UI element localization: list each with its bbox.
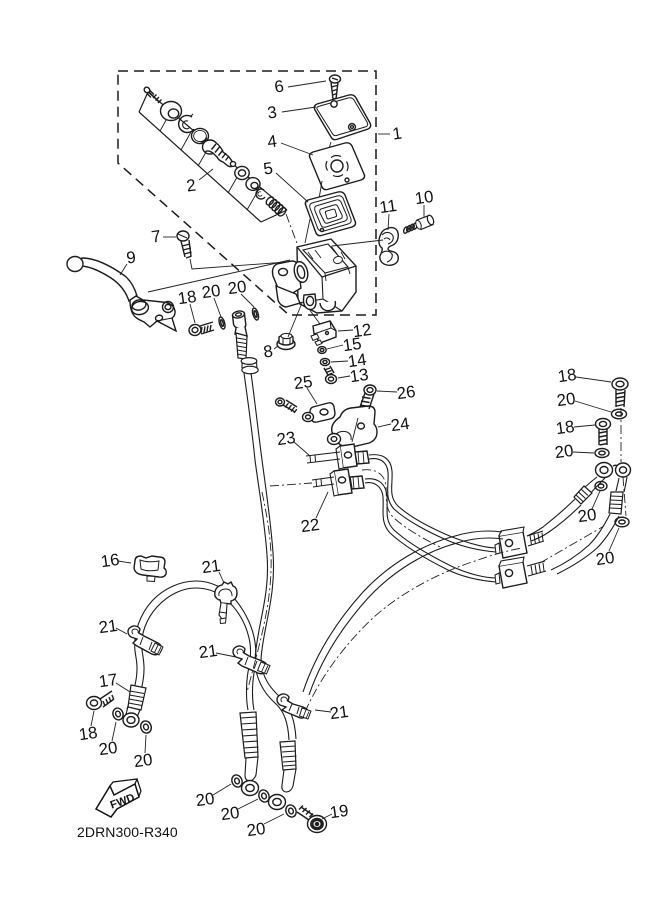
svg-text:16: 16 xyxy=(100,550,121,571)
svg-text:20: 20 xyxy=(227,277,248,298)
svg-text:20: 20 xyxy=(556,389,577,410)
svg-text:19: 19 xyxy=(329,801,350,822)
svg-text:20: 20 xyxy=(133,750,154,771)
svg-text:21: 21 xyxy=(329,702,350,723)
svg-text:23: 23 xyxy=(276,428,297,449)
svg-text:13: 13 xyxy=(349,365,370,386)
svg-text:25: 25 xyxy=(293,372,314,393)
svg-text:18: 18 xyxy=(555,417,576,438)
svg-text:20: 20 xyxy=(554,441,575,462)
svg-text:22: 22 xyxy=(300,515,321,536)
svg-text:17: 17 xyxy=(98,670,119,691)
svg-text:20: 20 xyxy=(195,789,216,810)
svg-text:18: 18 xyxy=(557,365,578,386)
svg-text:20: 20 xyxy=(98,738,119,759)
svg-text:10: 10 xyxy=(414,187,435,208)
svg-text:21: 21 xyxy=(201,556,222,577)
svg-text:21: 21 xyxy=(98,616,119,637)
svg-text:2DRN300-R340: 2DRN300-R340 xyxy=(77,824,178,840)
svg-text:20: 20 xyxy=(201,281,222,302)
svg-text:26: 26 xyxy=(396,382,417,403)
svg-text:20: 20 xyxy=(577,505,598,526)
svg-text:20: 20 xyxy=(246,819,267,840)
svg-text:24: 24 xyxy=(390,414,411,435)
svg-text:18: 18 xyxy=(78,723,99,744)
svg-text:11: 11 xyxy=(378,196,398,217)
svg-text:21: 21 xyxy=(198,641,219,662)
svg-text:20: 20 xyxy=(595,548,616,569)
svg-text:20: 20 xyxy=(220,803,241,824)
svg-text:18: 18 xyxy=(177,287,198,308)
